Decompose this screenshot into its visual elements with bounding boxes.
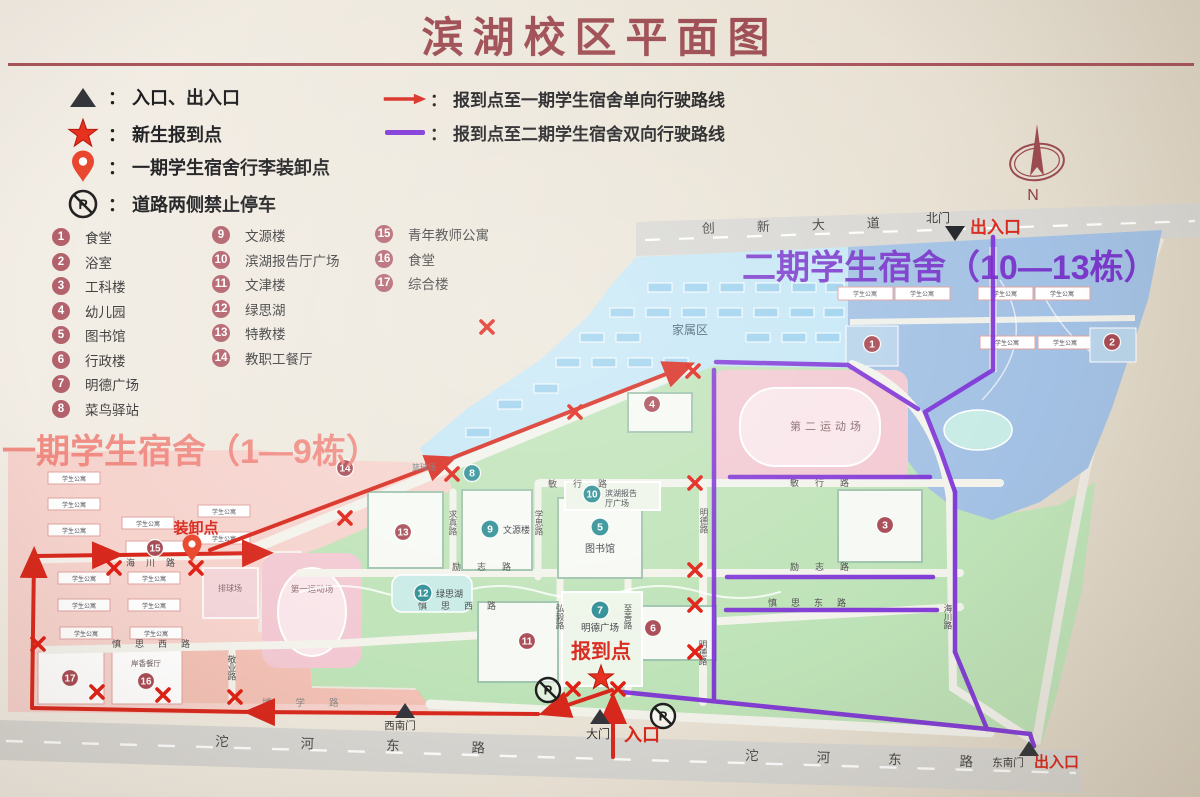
svg-text:出入口: 出入口 [1034,753,1079,771]
svg-text:文源楼: 文源楼 [503,524,530,535]
svg-text:博学路: 博学路 [262,697,363,709]
red-arrow-icon [382,92,428,106]
svg-text:学生公寓: 学生公寓 [62,475,86,483]
svg-text:入口: 入口 [624,725,660,745]
svg-text:7: 7 [597,605,603,617]
svg-text:海川路: 海川路 [943,603,953,630]
pin-icon [60,150,106,184]
svg-text:11: 11 [522,637,533,648]
svg-text:P: P [544,683,553,698]
legend-report-label: 新生报到点 [132,121,222,147]
svg-text:学生公寓: 学生公寓 [212,508,236,516]
svg-text:报到点: 报到点 [571,639,631,663]
family-area-label: 家属区 [672,322,708,337]
svg-text:学生公寓: 学生公寓 [62,501,86,509]
svg-text:大门: 大门 [586,726,610,741]
svg-text:排球场: 排球场 [218,583,242,593]
svg-text:17: 17 [64,674,76,685]
volleyball-court [203,568,258,618]
svg-text:滨湖报告: 滨湖报告 [605,488,637,498]
legend-entrance-label: 入口、出入口 [132,84,240,110]
svg-text:东南门: 东南门 [992,756,1024,769]
svg-text:北门: 北门 [926,210,950,225]
svg-text:学生公寓: 学生公寓 [72,602,96,610]
title-divider [8,63,1194,66]
svg-text:装卸点: 装卸点 [172,519,218,537]
svg-text:5: 5 [597,522,603,534]
svg-text:学生公寓: 学生公寓 [853,290,877,298]
svg-text:明德路: 明德路 [698,640,708,666]
entrance-triangle-icon [60,85,106,109]
svg-text:6: 6 [650,623,656,635]
svg-text:学思路: 学思路 [534,509,544,536]
svg-text:明德广场: 明德广场 [581,622,619,634]
campus-map-poster: 滨湖校区平面图 ： 入口、出入口 ： 新生报到点 ： 一期学生宿舍行李装卸点 [0,0,1200,797]
svg-text:学生公寓: 学生公寓 [993,290,1017,298]
north-arrow-icon [1030,124,1044,176]
svg-text:13: 13 [397,528,409,539]
svg-text:敬业路: 敬业路 [227,654,237,681]
svg-text:慎思西路: 慎思西路 [418,600,510,611]
svg-text:学生公寓: 学生公寓 [910,290,934,298]
svg-text:励志路: 励志路 [790,561,865,572]
svg-text:1: 1 [869,339,875,351]
svg-text:求真路: 求真路 [448,509,458,536]
star-icon [60,118,106,150]
svg-text:学生公寓: 学生公寓 [995,339,1019,347]
phase2-zone-title: 二期学生宿舍（10—13栋） [742,248,1158,287]
legend-two-way-route: ： 报到点至二期学生宿舍双向行驶路线 [382,120,725,145]
svg-text:学生公寓: 学生公寓 [74,630,98,638]
svg-text:10: 10 [586,490,598,501]
legend-one-way-route: ： 报到点至一期学生宿舍单向行驶路线 [382,86,725,111]
legend-report-point: ： 新生报到点 [60,118,222,150]
svg-text:9: 9 [487,524,493,536]
svg-text:明德路: 明德路 [699,508,709,534]
svg-text:学生公寓: 学生公寓 [1050,290,1074,298]
svg-text:学生公寓: 学生公寓 [142,575,166,583]
svg-text:3: 3 [882,520,888,532]
svg-text:图书馆: 图书馆 [585,542,615,555]
svg-text:学生公寓: 学生公寓 [72,575,96,583]
page-title: 滨湖校区平面图 [0,4,1200,65]
svg-text:P: P [659,709,668,724]
svg-text:学生公寓: 学生公寓 [1053,339,1077,347]
svg-text:篮球场: 篮球场 [412,462,436,472]
svg-text:励志路: 励志路 [452,561,527,572]
legend-luggage-point: ： 一期学生宿舍行李装卸点 [60,150,330,184]
svg-text:8: 8 [469,468,475,480]
svg-text:岸香餐厅: 岸香餐厅 [131,658,161,668]
purple-line-icon [382,130,428,135]
svg-text:学生公寓: 学生公寓 [62,527,86,535]
svg-text:15: 15 [149,544,161,555]
legend-two-way-label: 报到点至二期学生宿舍双向行驶路线 [453,120,725,145]
svg-text:至善路: 至善路 [623,604,633,630]
campus-map: 家属区 学生公寓 学生公寓 学生公寓 学生公寓 学生公寓 学生公寓 [0,195,1200,797]
svg-text:学生公寓: 学生公寓 [136,520,160,528]
svg-text:慎思西路: 慎思西路 [112,638,204,649]
phase1-zone-title: 一期学生宿舍（1—9栋） [2,432,380,471]
svg-text:绿思湖: 绿思湖 [436,588,463,599]
svg-text:学生公寓: 学生公寓 [142,602,166,610]
svg-text:出入口: 出入口 [970,217,1021,237]
svg-text:16: 16 [140,677,152,688]
svg-text:12: 12 [417,589,429,600]
svg-text:西南门: 西南门 [384,719,416,732]
svg-text:2: 2 [1109,337,1115,349]
pond [944,410,1012,450]
legend-entrance: ： 入口、出入口 [60,84,240,110]
svg-text:厅广场: 厅广场 [605,498,629,508]
legend-luggage-label: 一期学生宿舍行李装卸点 [132,154,330,180]
svg-text:学生公寓: 学生公寓 [144,630,168,638]
svg-text:弘毅路: 弘毅路 [555,604,565,630]
svg-text:第二运动场: 第二运动场 [790,419,865,433]
svg-text:慎思东路: 慎思东路 [768,597,860,608]
legend-one-way-label: 报到点至一期学生宿舍单向行驶路线 [453,86,725,111]
svg-text:4: 4 [649,399,655,411]
svg-text:海川路: 海川路 [126,557,186,568]
